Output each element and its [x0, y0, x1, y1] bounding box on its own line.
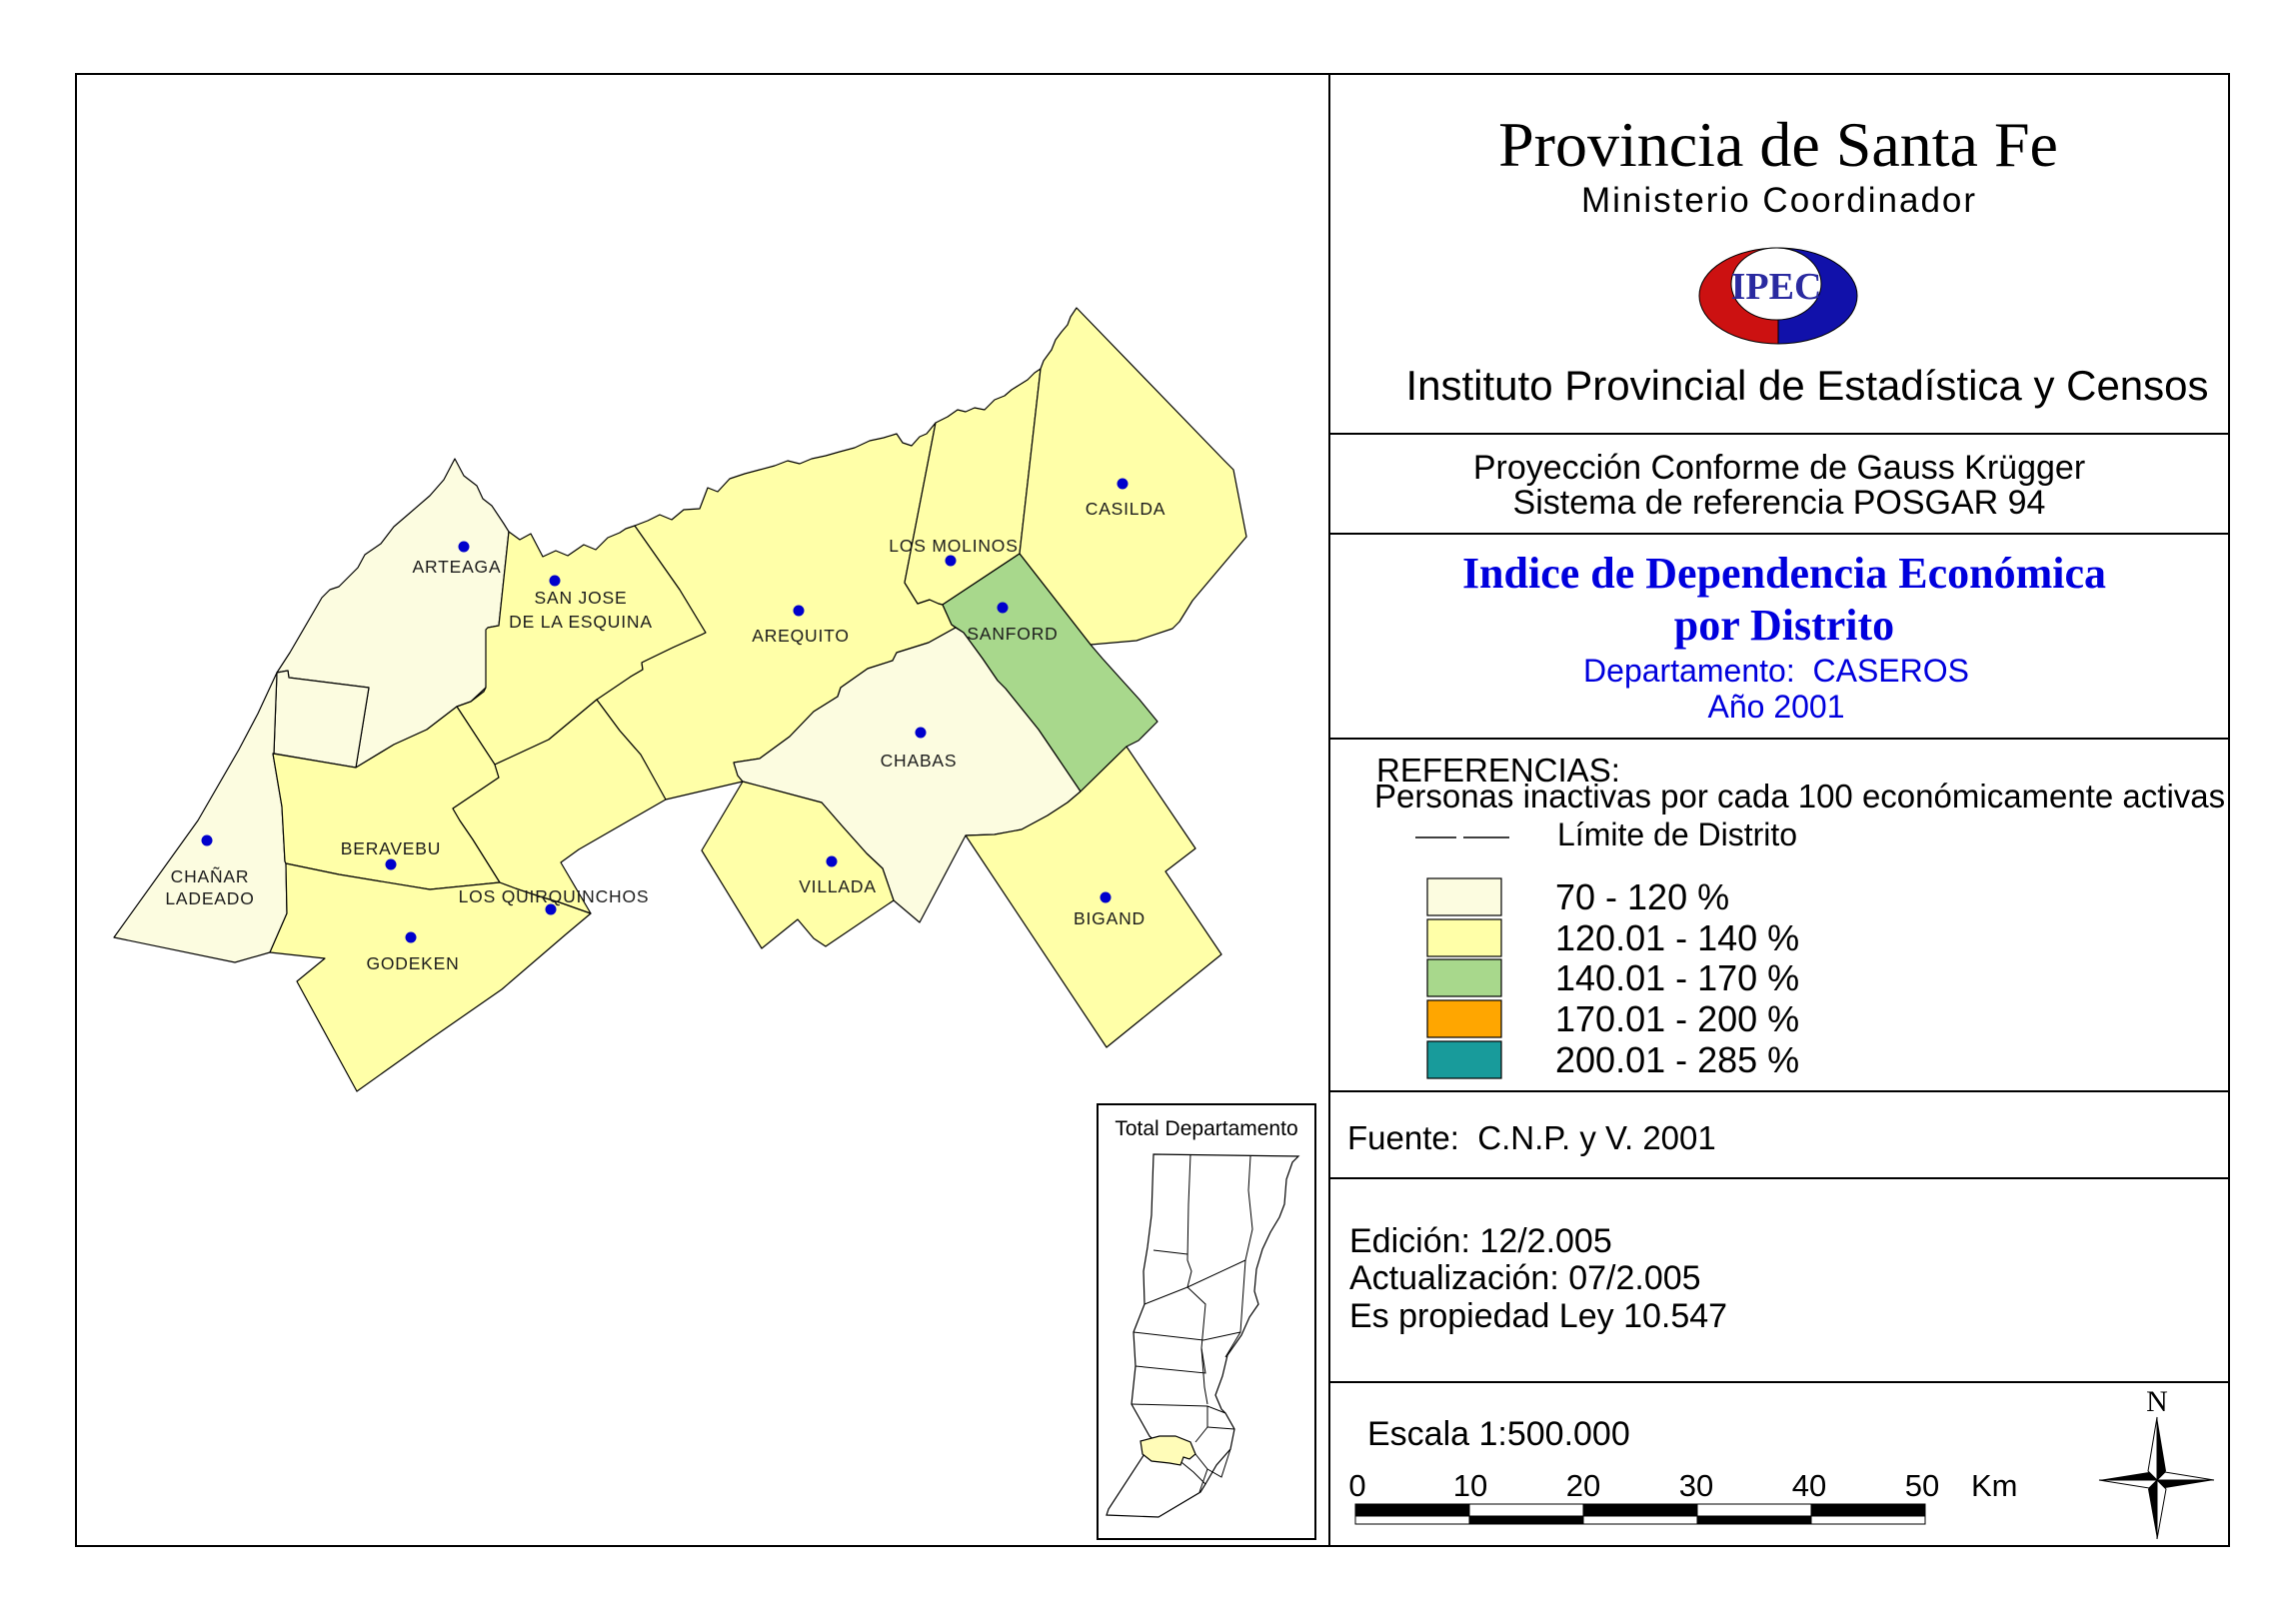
svg-text:SAN JOSE: SAN JOSE: [535, 588, 628, 608]
svg-text:CASILDA: CASILDA: [1086, 499, 1166, 519]
svg-text:Departamento: CASEROS: Departamento: CASEROS: [1583, 653, 1969, 689]
svg-text:Km: Km: [1971, 1468, 2018, 1503]
svg-text:Personas inactivas por cada 10: Personas inactivas por cada 100 económic…: [1374, 778, 2225, 814]
svg-text:Actualización: 07/2.005: Actualización: 07/2.005: [1349, 1259, 1701, 1297]
svg-text:Año 2001: Año 2001: [1707, 689, 1844, 725]
svg-text:140.01 - 170 %: 140.01 - 170 %: [1555, 957, 1799, 998]
svg-text:Provincia de Santa Fe: Provincia de Santa Fe: [1498, 109, 2058, 180]
svg-text:DE LA ESQUINA: DE LA ESQUINA: [509, 612, 653, 632]
svg-text:120.01 - 140 %: 120.01 - 140 %: [1555, 917, 1799, 958]
svg-text:Instituto Provincial de Estadí: Instituto Provincial de Estadística y Ce…: [1405, 362, 2208, 409]
svg-text:Ministerio Coordinador: Ministerio Coordinador: [1581, 181, 1977, 220]
svg-text:LADEADO: LADEADO: [165, 888, 254, 908]
svg-text:BIGAND: BIGAND: [1074, 908, 1146, 928]
svg-text:CHABAS: CHABAS: [881, 751, 958, 771]
svg-text:LOS QUIRQUINCHOS: LOS QUIRQUINCHOS: [459, 886, 650, 906]
svg-text:0: 0: [1348, 1468, 1365, 1503]
svg-text:10: 10: [1453, 1468, 1487, 1503]
svg-text:N: N: [2146, 1385, 2168, 1418]
svg-text:Indice de Dependencia Económic: Indice de Dependencia Económica: [1462, 549, 2106, 598]
svg-text:ARTEAGA: ARTEAGA: [413, 557, 502, 577]
svg-text:50: 50: [1905, 1468, 1939, 1503]
svg-text:SANFORD: SANFORD: [967, 624, 1058, 644]
svg-text:70 - 120 %: 70 - 120 %: [1555, 876, 1729, 917]
svg-text:Total Departamento: Total Departamento: [1115, 1117, 1297, 1140]
svg-text:Límite de Distrito: Límite de Distrito: [1557, 816, 1797, 852]
svg-text:Edición: 12/2.005: Edición: 12/2.005: [1349, 1222, 1612, 1260]
svg-text:40: 40: [1792, 1468, 1826, 1503]
svg-text:30: 30: [1679, 1468, 1713, 1503]
svg-text:por Distrito: por Distrito: [1674, 601, 1894, 650]
svg-text:VILLADA: VILLADA: [799, 876, 877, 896]
svg-text:LOS MOLINOS: LOS MOLINOS: [889, 536, 1018, 556]
svg-text:Escala 1:500.000: Escala 1:500.000: [1367, 1415, 1630, 1453]
svg-text:20: 20: [1566, 1468, 1600, 1503]
svg-text:CHAÑAR: CHAÑAR: [171, 865, 250, 886]
svg-text:Proyección Conforme de Gauss K: Proyección Conforme de Gauss Krügger: [1473, 449, 2085, 487]
svg-text:170.01 - 200 %: 170.01 - 200 %: [1555, 998, 1799, 1039]
svg-text:Es propiedad Ley 10.547: Es propiedad Ley 10.547: [1349, 1297, 1727, 1335]
svg-text:200.01 - 285 %: 200.01 - 285 %: [1555, 1039, 1799, 1080]
svg-text:IPEC: IPEC: [1731, 266, 1822, 308]
svg-text:BERAVEBU: BERAVEBU: [341, 838, 441, 858]
svg-text:Sistema de referencia POSGAR 9: Sistema de referencia POSGAR 94: [1513, 484, 2046, 522]
svg-text:GODEKEN: GODEKEN: [366, 953, 459, 973]
svg-text:Fuente: C.N.P. y V. 2001: Fuente: C.N.P. y V. 2001: [1347, 1119, 1716, 1156]
svg-text:AREQUITO: AREQUITO: [752, 626, 849, 646]
